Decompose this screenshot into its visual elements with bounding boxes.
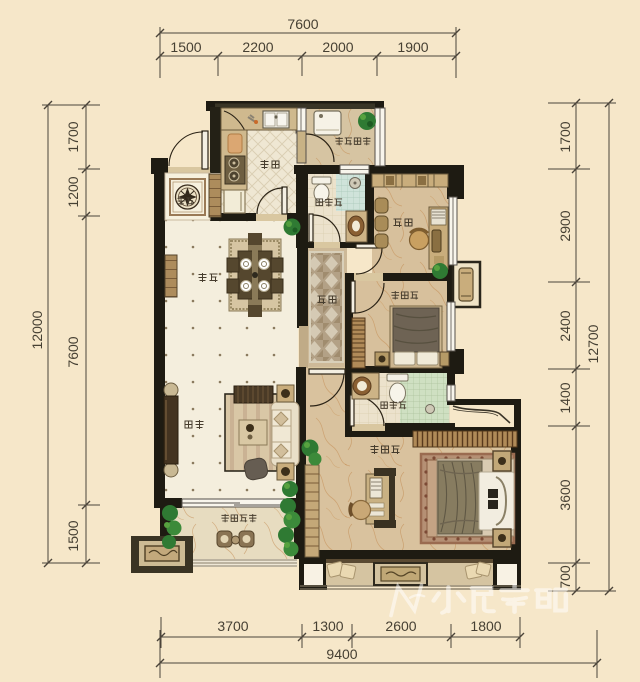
svg-text:1700: 1700 <box>65 121 81 152</box>
svg-text:3600: 3600 <box>557 479 573 510</box>
svg-text:2000: 2000 <box>322 39 353 55</box>
svg-text:1500: 1500 <box>170 39 201 55</box>
svg-text:2900: 2900 <box>557 210 573 241</box>
svg-text:7600: 7600 <box>287 16 318 32</box>
svg-text:7600: 7600 <box>65 336 81 367</box>
svg-text:2200: 2200 <box>242 39 273 55</box>
svg-text:1500: 1500 <box>65 520 81 551</box>
svg-text:12000: 12000 <box>29 310 45 349</box>
svg-text:1300: 1300 <box>312 618 343 634</box>
svg-text:1900: 1900 <box>397 39 428 55</box>
svg-text:2400: 2400 <box>557 310 573 341</box>
svg-text:1700: 1700 <box>557 121 573 152</box>
svg-text:1800: 1800 <box>470 618 501 634</box>
svg-text:12700: 12700 <box>585 324 601 363</box>
svg-text:3700: 3700 <box>217 618 248 634</box>
svg-text:700: 700 <box>557 565 573 589</box>
svg-text:1200: 1200 <box>65 176 81 207</box>
svg-text:2600: 2600 <box>385 618 416 634</box>
svg-text:9400: 9400 <box>326 646 357 662</box>
svg-text:1400: 1400 <box>557 382 573 413</box>
